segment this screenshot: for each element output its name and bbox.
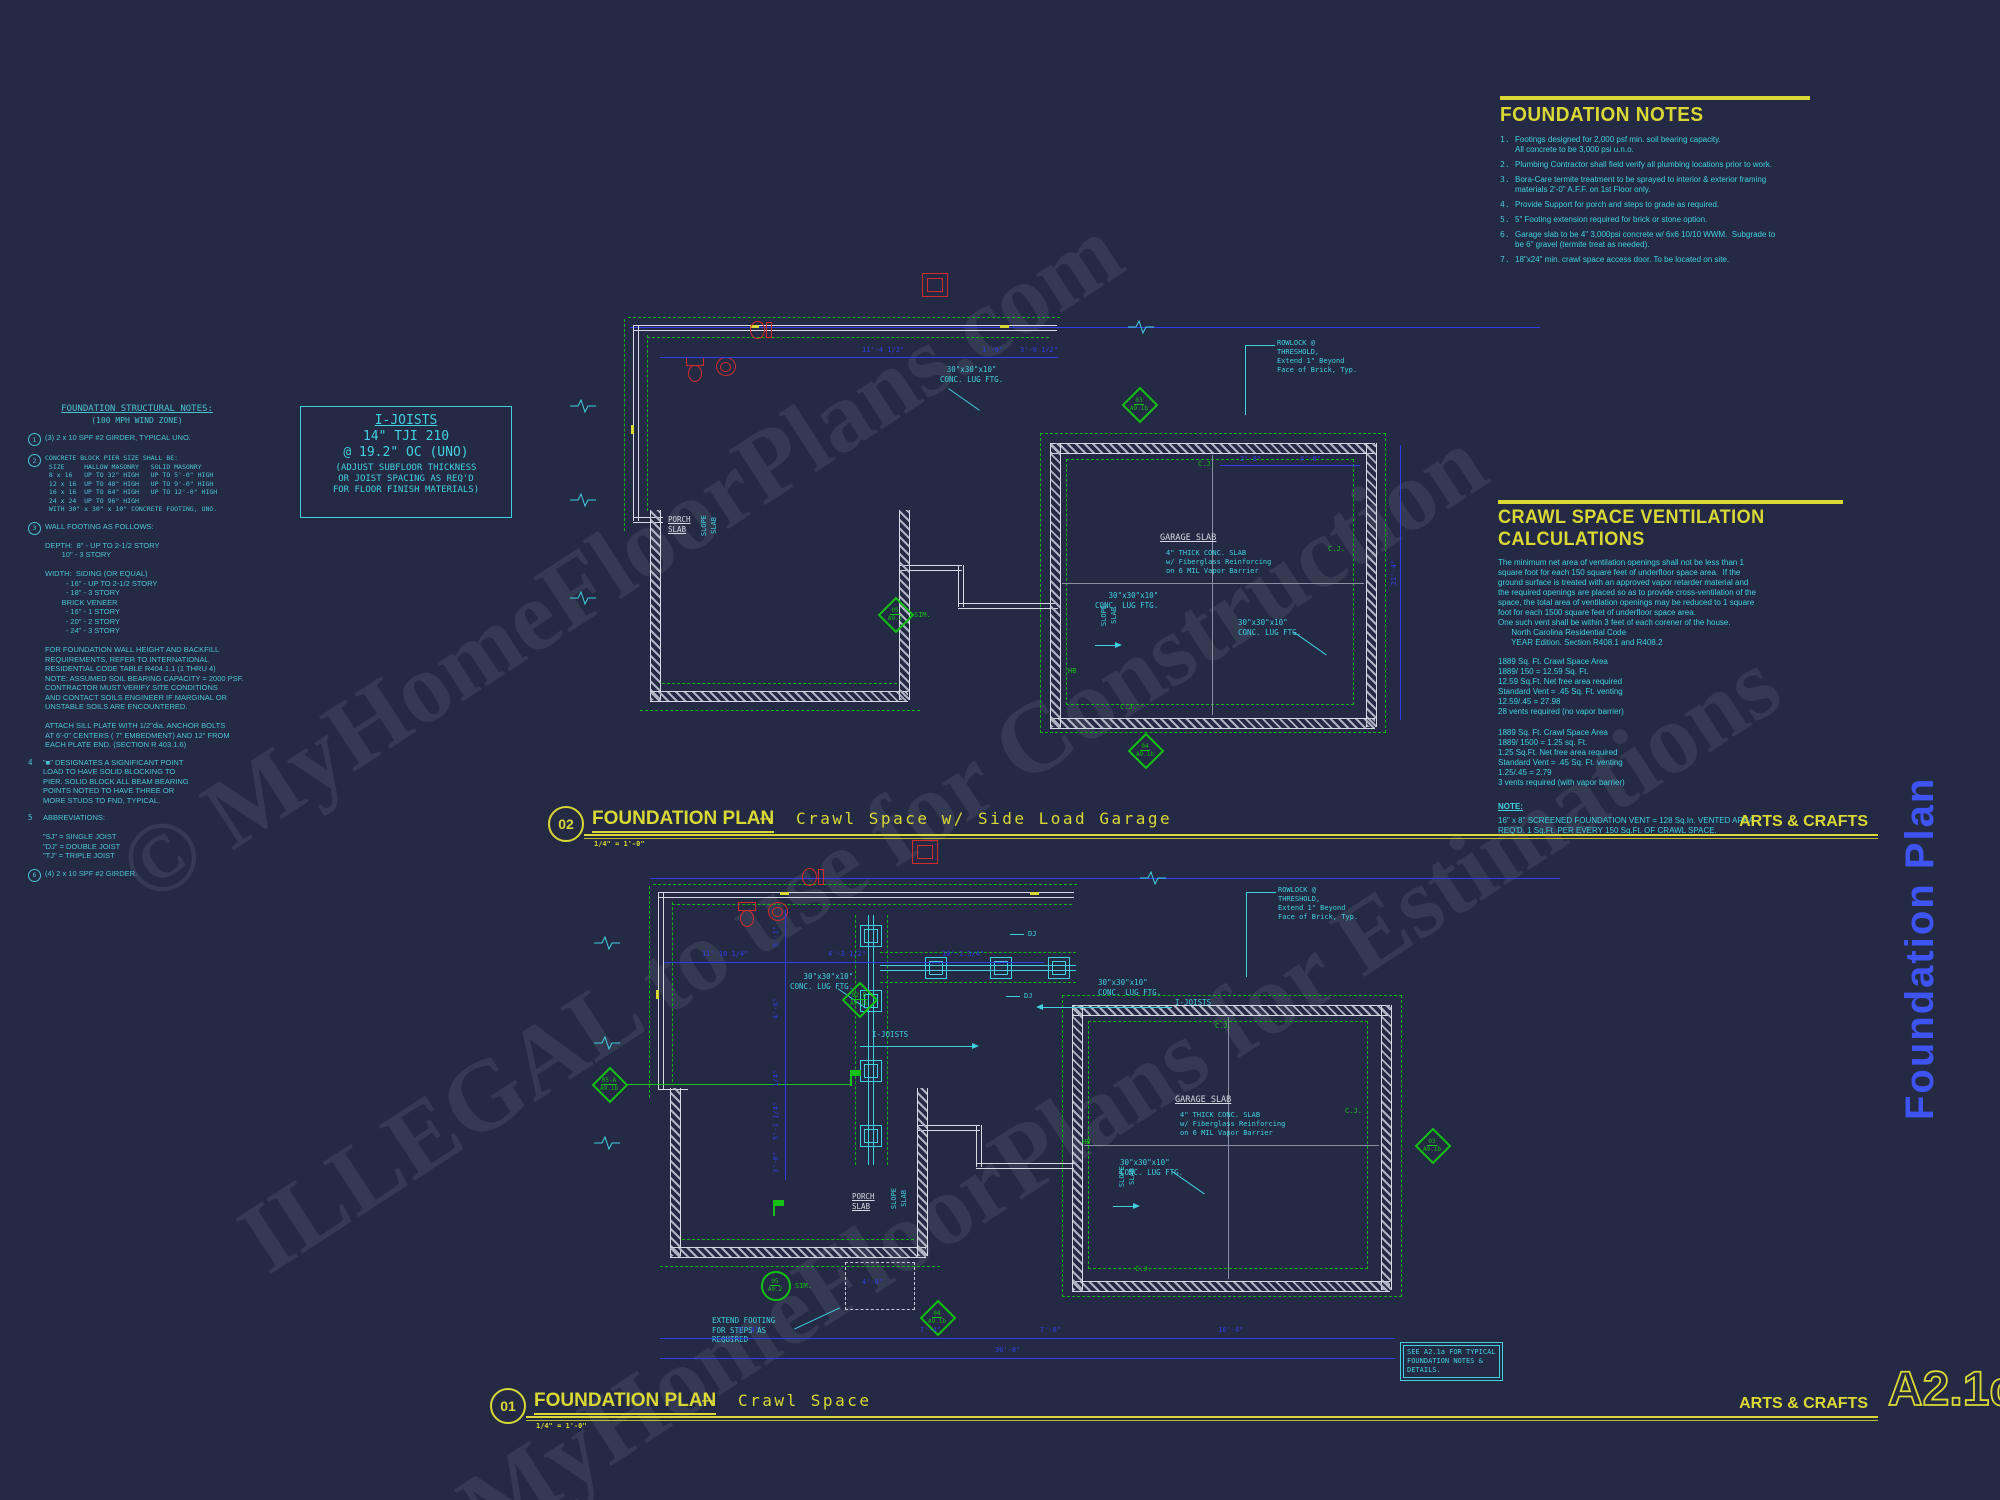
note-number: 6. (1500, 230, 1511, 250)
foundation-vent-icon (656, 990, 659, 999)
title-rule (584, 838, 1878, 839)
marker-sheet: A9.1b (600, 1085, 618, 1092)
plan-title-dash: — (702, 1390, 713, 1411)
break-line-icon (570, 493, 596, 507)
detail-marker: 05A9.2 (758, 1268, 792, 1302)
dim-label: 1'-6" (982, 346, 1003, 355)
pier-icon (860, 1060, 882, 1082)
footing-dash-line (672, 902, 673, 1082)
note-text: Bora-Care termite treatment to be spraye… (1515, 175, 1766, 195)
plumbing-fixture-icon (766, 322, 772, 338)
note-number: 4. (1500, 200, 1511, 210)
foundation-vent-icon (1000, 325, 1009, 328)
ventilation-paragraph: The minimum net area of ventilation open… (1498, 558, 1848, 648)
joist-arrow-line (1040, 1007, 1172, 1008)
wall-segment (976, 1163, 1074, 1169)
dim-label: 10'-1 3/4" (942, 950, 984, 959)
leader-line (948, 388, 980, 411)
foundation-note: 4. Provide Support for porch and steps t… (1500, 200, 1825, 210)
wall-segment (958, 565, 964, 607)
title-rule (526, 1416, 1878, 1418)
structural-note: 4 "■" DESIGNATES A SIGNIFICANT POINT LOA… (28, 758, 246, 806)
plan-scale: 1/4" = 1'-0" (536, 1422, 587, 1431)
note-number: 2. (1500, 160, 1511, 170)
porch-wall (650, 691, 908, 702)
marker-sheet: A9.1b (850, 1000, 868, 1007)
plan-title: FOUNDATION PLAN (534, 1390, 716, 1415)
note-number: 7. (1500, 255, 1511, 265)
slope-label: SLOPE (890, 1188, 899, 1209)
note-number: 2 (28, 454, 41, 467)
marker-id: 05-A (601, 1077, 617, 1085)
note-text: Garage slab to be 4" 3,000psi concrete w… (1515, 230, 1775, 250)
leader-line (1010, 934, 1024, 935)
marker-id: 02-B (851, 992, 867, 1000)
drawing-sheet: © MyHomeFloorPlans.com ILLEGAL to use fo… (0, 0, 2000, 1500)
note-number: 3. (1500, 175, 1511, 195)
plan-number-bubble: 02 (548, 806, 584, 842)
water-heater-icon (912, 840, 938, 864)
dimension-line (785, 910, 786, 1180)
break-line-icon (570, 591, 596, 605)
foundation-note: 5. 5" Footing extension required for bri… (1500, 215, 1825, 225)
porch-wall (670, 1247, 926, 1258)
lug-footing-callout: 30"x30"x10" CONC. LUG FTG. (1120, 1158, 1183, 1177)
ijoists-spacing: @ 19.2" OC (UNO) (301, 445, 511, 461)
control-joint-line (1062, 583, 1364, 584)
double-joist-label: DJ (1028, 930, 1036, 939)
dimension-line (1400, 445, 1401, 720)
note-text: "■" DESIGNATES A SIGNIFICANT POINT LOAD … (43, 758, 189, 806)
note-text: Plumbing Contractor shall field verify a… (1515, 160, 1772, 170)
ijoists-note: (ADJUST SUBFLOOR THICKNESS OR JOIST SPAC… (301, 463, 511, 496)
marker-sheet: A9.1b (1130, 405, 1148, 412)
note-number: 1 (28, 433, 41, 446)
title-rule (584, 834, 1878, 836)
marker-sheet: A9.1b (928, 1318, 946, 1325)
slope-arrow-line (1095, 645, 1117, 646)
detail-marker: 05-AA9.1b (592, 1067, 626, 1101)
control-joint-line (1084, 1145, 1379, 1146)
dimension-line (1220, 465, 1360, 466)
plumbing-fixture-icon (750, 321, 765, 339)
note-number: 5. (1500, 215, 1511, 225)
marker-sheet: A9.2 (888, 615, 902, 622)
title-rule (1500, 96, 1810, 100)
note-number: 6 (28, 869, 41, 882)
arrow-icon (1036, 1004, 1043, 1010)
note-text: (4) 2 x 10 SPF #2 GIRDER. (45, 869, 137, 882)
dim-label: 4'-6" (772, 998, 781, 1019)
footing-dash-line (624, 319, 625, 531)
sink-fixture-icon (716, 357, 736, 376)
footing-dash-line (628, 317, 1060, 318)
plumbing-fixture-icon (818, 869, 824, 885)
pier-icon (860, 1125, 882, 1147)
pier-icon (925, 957, 947, 979)
wall-segment (633, 325, 1057, 331)
footing-dash-line (649, 886, 650, 1098)
break-line-icon (594, 936, 620, 950)
dimension-line (664, 962, 1044, 963)
slab-label: SLAB (900, 1190, 909, 1207)
lug-footing-callout: 30"x30"x10" CONC. LUG FTG. (1095, 591, 1158, 610)
dim-label: 7'-8" (1040, 1326, 1061, 1335)
dimension-line (660, 357, 1058, 358)
leader-line (1006, 996, 1020, 997)
porch-wall (670, 1088, 681, 1256)
structural-notes-block: FOUNDATION STRUCTURAL NOTES: (100 MPH WI… (28, 404, 246, 890)
plan-number: 02 (558, 816, 574, 832)
flag-icon (775, 1200, 784, 1206)
note-text: CONCRETE BLOCK PIER SIZE SHALL BE: SIZE … (45, 454, 217, 514)
note-text: Provide Support for porch and steps to g… (1515, 200, 1719, 210)
footing-dash-line (640, 710, 920, 711)
structural-note: 2 CONCRETE BLOCK PIER SIZE SHALL BE: SIZ… (28, 454, 246, 514)
plan-title-dash: — (760, 808, 771, 829)
note-number: 4 (28, 758, 39, 806)
break-line-icon (594, 1136, 620, 1150)
break-line-icon (594, 1036, 620, 1050)
marker-sheet: A9.1b (1136, 751, 1154, 758)
slope-label: SLOPE (700, 515, 709, 536)
porch-slab-label: PORCH SLAB (852, 1192, 875, 1211)
dim-label: 5'-4" (738, 1326, 759, 1335)
marker-id: 05 (890, 607, 899, 615)
porch-wall (917, 1088, 928, 1256)
hose-bib-label: HB (1082, 1138, 1090, 1147)
lug-footing-callout: 30"x30"x10" CONC. LUG FTG. (1238, 618, 1301, 637)
marker-id: 05 (770, 1278, 779, 1286)
leader-line (1246, 892, 1247, 977)
control-joint-label: C.J. (1215, 1022, 1232, 1031)
dim-label: 1/4" (772, 1070, 781, 1087)
dimension-line (660, 1358, 1395, 1359)
note-text: Footings designed for 2,000 psf min. soi… (1515, 135, 1721, 155)
marker-id: 03 (1427, 1138, 1436, 1146)
wall-segment (658, 892, 1074, 898)
arrow-icon (1115, 642, 1122, 648)
break-line-icon (1140, 871, 1166, 885)
foundation-vent-icon (780, 892, 789, 895)
break-line-icon (570, 399, 596, 413)
control-joint-label: C.J. (1135, 1265, 1152, 1274)
note-number: 5 (28, 813, 39, 861)
porch-slab-label: PORCH SLAB (668, 515, 691, 534)
footing-dash-line (647, 337, 1049, 338)
porch-wall (650, 510, 661, 700)
marker-id: 04 (932, 1310, 941, 1318)
garage-slab-spec: 4" THICK CONC. SLAB w/ Fiberglass Reinfo… (1166, 549, 1271, 576)
foundation-vent-icon (1030, 892, 1039, 895)
structural-notes-title: FOUNDATION STRUCTURAL NOTES: (28, 404, 246, 415)
detail-marker: 05A9.2 (878, 597, 912, 631)
sim-label: SIM. (795, 1282, 812, 1291)
marker-id: 03 (1134, 397, 1143, 405)
arrow-icon (972, 1043, 979, 1049)
leader-line (1246, 892, 1276, 893)
sheet-number: A2.1d (1888, 1362, 2000, 1417)
plan-number: 01 (500, 1398, 516, 1414)
note-text: ABBREVIATIONS: "SJ" = SINGLE JOIST "DJ" … (43, 813, 120, 861)
toilet-fixture-icon (740, 910, 754, 927)
girder-line (880, 965, 1076, 971)
ijoists-size: 14" TJI 210 (301, 429, 511, 445)
plan-01-title-row: 01 FOUNDATION PLAN — Crawl Space 1/4" = … (490, 1382, 1880, 1434)
structural-notes-subtitle: (100 MPH WIND ZONE) (28, 415, 246, 427)
control-joint-label: C.J. (1345, 1107, 1362, 1116)
pier-icon (860, 925, 882, 947)
detail-marker: 04A9.1b (1128, 733, 1162, 767)
dim-label: 3'-0 1/2" (1020, 346, 1058, 355)
flag-icon (852, 1070, 861, 1076)
ventilation-calcs-block: CRAWL SPACE VENTILATION CALCULATIONS The… (1498, 500, 1848, 836)
structural-note: 1 (3) 2 x 10 SPF #2 GIRDER, TYPICAL UNO. (28, 433, 246, 446)
style-label: ARTS & CRAFTS (1739, 1395, 1868, 1413)
footing-dash-line (662, 683, 897, 684)
leader-line (794, 1307, 840, 1329)
dim-label: 5'-1 1/4" (772, 1102, 781, 1140)
foundation-note: 3. Bora-Care termite treatment to be spr… (1500, 175, 1825, 195)
slab-label: SLAB (710, 517, 719, 534)
plan-number-bubble: 01 (490, 1388, 526, 1424)
dimension-line (660, 1338, 1395, 1339)
ijoists-label: I-JOISTS (872, 1030, 908, 1040)
plan-title: FOUNDATION PLAN (592, 808, 774, 833)
garage-slab-spec: 4" THICK CONC. SLAB w/ Fiberglass Reinfo… (1180, 1111, 1285, 1138)
ventilation-title: CRAWL SPACE VENTILATION CALCULATIONS (1498, 507, 1831, 551)
pier-icon (1048, 957, 1070, 979)
pier-icon (990, 957, 1012, 979)
dim-label: 36'-8" (995, 1346, 1020, 1355)
dim-label: 5'-1" (772, 926, 781, 947)
footing-dash-line (880, 982, 1076, 983)
foundation-plan-01-drawing: PORCH SLAB SLOPE SLAB EXTEND FOOTING FOR… (620, 870, 1470, 1370)
wall-segment (633, 325, 639, 521)
dim-label: 11'-10 1/4" (702, 950, 748, 959)
wall-segment (976, 1125, 982, 1167)
structural-note: 5 ABBREVIATIONS: "SJ" = SINGLE JOIST "DJ… (28, 813, 246, 861)
toilet-fixture-icon (688, 365, 702, 382)
vent-calc-no-barrier: 1889 Sq. Ft. Crawl Space Area 1889/ 150 … (1498, 657, 1848, 717)
plan-subtitle: Crawl Space w/ Side Load Garage (796, 809, 1172, 828)
control-joint-label: C.J. (1328, 545, 1345, 554)
note-number: 3 (28, 522, 41, 535)
arrow-icon (1133, 1203, 1140, 1209)
control-joint-line (1228, 1017, 1229, 1279)
plan-subtitle: Crawl Space (738, 1391, 871, 1410)
leader-line (1245, 345, 1246, 415)
footing-dash-line (647, 335, 648, 511)
foundation-note: 1. Footings designed for 2,000 psf min. … (1500, 135, 1825, 155)
hose-bib-label: HB (1068, 667, 1076, 676)
lug-footing-callout: 30"x30"x10" CONC. LUG FTG. (940, 365, 1003, 384)
sim-label: SIM. (914, 611, 931, 620)
dim-label: 16'-4" (1218, 1326, 1243, 1335)
detail-marker: 03A9.1b (1122, 387, 1156, 421)
garage-slab-label: GARAGE SLAB (1160, 533, 1216, 543)
dim-label: 3'-0" (772, 1152, 781, 1173)
control-joint-line (1212, 455, 1213, 715)
foundation-notes-block: FOUNDATION NOTES 1. Footings designed fo… (1500, 96, 1825, 270)
vent-calc-vapor-barrier: 1889 Sq. Ft. Crawl Space Area 1889/ 1500… (1498, 728, 1848, 788)
ijoists-label: I-JOISTS (1175, 998, 1211, 1008)
note-text: (3) 2 x 10 SPF #2 GIRDER, TYPICAL UNO. (45, 433, 191, 446)
footing-dash-line (672, 904, 1072, 905)
dim-label: 7'-4" (920, 1326, 941, 1335)
marker-leader-line (628, 1084, 850, 1085)
foundation-note: 7. 18"x24" min. crawl space access door.… (1500, 255, 1825, 265)
see-note-text: SEE A2.1a FOR TYPICAL FOUNDATION NOTES &… (1407, 1348, 1496, 1375)
note-number: 1. (1500, 135, 1511, 155)
structural-note: 6 (4) 2 x 10 SPF #2 GIRDER. (28, 869, 246, 882)
detail-marker: 03A9.1b (1415, 1128, 1449, 1162)
ijoists-title: I-JOISTS (301, 413, 511, 429)
marker-id: 04 (1140, 743, 1149, 751)
ijoists-callout-box: I-JOISTS 14" TJI 210 @ 19.2" OC (UNO) (A… (300, 406, 512, 518)
plan-02-title-row: 02 FOUNDATION PLAN — Crawl Space w/ Side… (548, 800, 1880, 852)
footing-dash-line (682, 1239, 914, 1240)
lug-footing-callout: 30"x30"x10" CONC. LUG FTG. (1098, 978, 1161, 997)
water-heater-icon (922, 273, 948, 297)
style-label: ARTS & CRAFTS (1739, 813, 1868, 831)
foundation-note: 2. Plumbing Contractor shall field verif… (1500, 160, 1825, 170)
dim-label: 21'-4" (1390, 560, 1399, 585)
marker-sheet: A9.2 (768, 1286, 782, 1293)
slope-arrow-line (1113, 1206, 1135, 1207)
note-text: WALL FOOTING AS FOLLOWS: DEPTH: 8" - UP … (45, 522, 243, 750)
plan-scale: 1/4" = 1'-0" (594, 840, 645, 849)
dim-label: 4'-0" (862, 1278, 883, 1287)
structural-note: 3 WALL FOOTING AS FOLLOWS: DEPTH: 8" - U… (28, 522, 246, 750)
footing-dash-rect (1062, 995, 1402, 1297)
double-joist-label: DJ (1024, 992, 1032, 1001)
leader-line (1245, 345, 1275, 346)
control-joint-label: C.J. (1120, 703, 1137, 712)
break-line-icon (1128, 320, 1154, 334)
joist-arrow-line (860, 1046, 975, 1047)
sheet-side-title: Foundation Plan (1898, 760, 1943, 1120)
rowlock-note: ROWLOCK @ THRESHOLD, Extend 1" Beyond Fa… (1277, 339, 1357, 375)
marker-sheet: A9.1b (1423, 1146, 1441, 1153)
garage-slab-label: GARAGE SLAB (1175, 1095, 1231, 1105)
foundation-notes-title: FOUNDATION NOTES (1500, 104, 1809, 127)
foundation-plan-02-drawing: PORCH SLAB SLOPE SLAB GARAGE SLAB 4" THI… (600, 315, 1450, 795)
foundation-note: 6. Garage slab to be 4" 3,000psi concret… (1500, 230, 1825, 250)
dim-label: 11'-4 1/2" (862, 346, 904, 355)
title-rule (526, 1420, 1878, 1421)
plumbing-fixture-icon (802, 868, 817, 886)
dim-label: 4'-8" (1300, 455, 1321, 464)
rowlock-note: ROWLOCK @ THRESHOLD, Extend 1" Beyond Fa… (1278, 886, 1358, 922)
foundation-vent-icon (631, 425, 634, 434)
note-text: 5" Footing extension required for brick … (1515, 215, 1707, 225)
control-joint-label: C.J. (1198, 460, 1215, 469)
dim-label: 2'-8" (1240, 455, 1261, 464)
dimension-line (650, 878, 1560, 879)
footing-dash-line (653, 884, 1077, 885)
detail-marker: 02-BA9.1b (842, 982, 876, 1016)
see-note-box: SEE A2.1a FOR TYPICAL FOUNDATION NOTES &… (1400, 1342, 1503, 1381)
note-text: 18"x24" min. crawl space access door. To… (1515, 255, 1729, 265)
dim-label: 4'-3 1/2" (828, 950, 866, 959)
title-rule (1498, 500, 1843, 504)
